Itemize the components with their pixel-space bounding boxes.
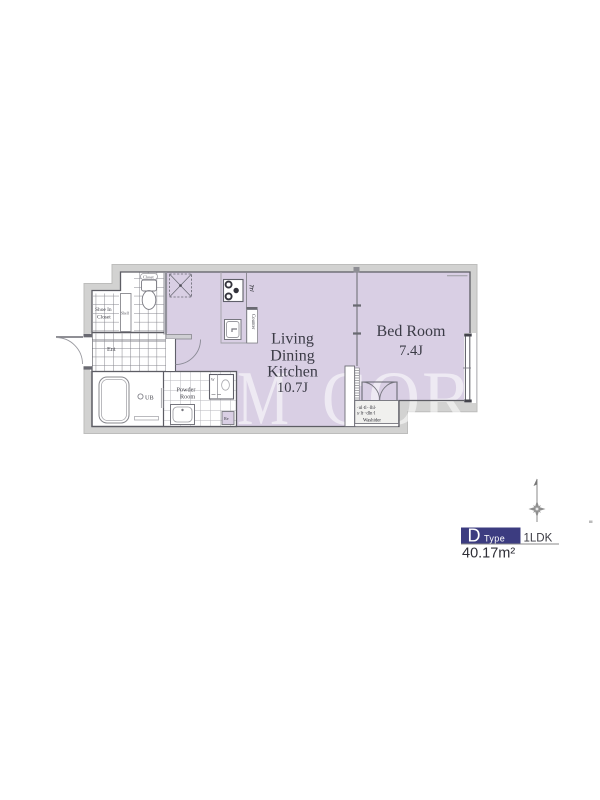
- svg-text:Ent: Ent: [107, 346, 116, 353]
- svg-text:·ul·tl··lhl·: ·ul·tl··lhl·: [357, 406, 377, 411]
- svg-text:Room: Room: [180, 394, 195, 401]
- svg-text:s·lt··dln·l: s·lt··dln·l: [357, 412, 376, 417]
- svg-text:Shoe In: Shoe In: [95, 307, 112, 313]
- svg-text:Closet: Closet: [97, 315, 111, 321]
- svg-text:Re: Re: [224, 416, 229, 421]
- svg-text:D: D: [468, 526, 481, 546]
- svg-text:O: O: [368, 355, 420, 441]
- svg-text:Kitchen: Kitchen: [267, 364, 318, 381]
- svg-text:Powder: Powder: [177, 387, 196, 394]
- svg-text:1LDK: 1LDK: [524, 533, 553, 545]
- svg-text:Living: Living: [271, 330, 314, 347]
- svg-text:Bed Room: Bed Room: [377, 323, 446, 340]
- svg-text:10.7J: 10.7J: [277, 380, 308, 396]
- svg-text:Type: Type: [484, 534, 505, 544]
- svg-text:Dining: Dining: [270, 347, 314, 364]
- svg-text:Closet: Closet: [143, 274, 155, 279]
- svg-text:Washider: Washider: [363, 419, 381, 424]
- svg-text:40.17m²: 40.17m²: [462, 546, 515, 562]
- svg-text:7.4J: 7.4J: [399, 343, 423, 359]
- svg-text:Counter: Counter: [250, 314, 255, 330]
- svg-text:Shelf: Shelf: [121, 312, 130, 316]
- svg-text:UB: UB: [145, 395, 154, 402]
- svg-text:W: W: [211, 378, 215, 382]
